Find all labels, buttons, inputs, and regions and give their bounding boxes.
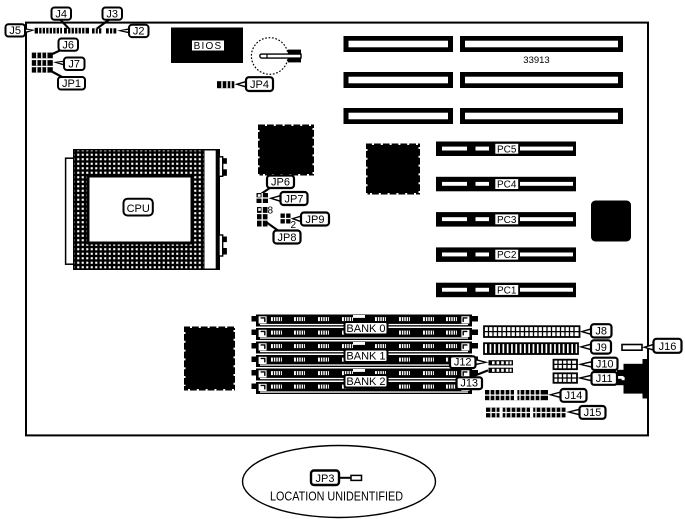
svg-text:PC2: PC2 <box>497 250 517 261</box>
svg-text:J5: J5 <box>9 25 21 37</box>
svg-text:PC1: PC1 <box>497 286 517 297</box>
svg-text:PC4: PC4 <box>497 180 517 191</box>
svg-text:2: 2 <box>291 220 297 231</box>
svg-text:8: 8 <box>268 206 274 217</box>
svg-text:33913: 33913 <box>523 55 549 66</box>
svg-text:J8: J8 <box>595 326 607 338</box>
svg-text:BIOS: BIOS <box>194 41 223 52</box>
svg-text:JP8: JP8 <box>278 232 297 244</box>
svg-text:BANK 1: BANK 1 <box>346 351 385 363</box>
svg-text:LOCATION UNIDENTIFIED: LOCATION UNIDENTIFIED <box>270 490 403 504</box>
svg-text:J3: J3 <box>106 8 118 20</box>
svg-text:J13: J13 <box>460 378 478 390</box>
svg-text:CPU: CPU <box>127 203 150 215</box>
svg-text:J6: J6 <box>62 39 74 51</box>
svg-text:J11: J11 <box>596 373 613 385</box>
svg-text:BANK 0: BANK 0 <box>346 323 385 335</box>
svg-text:J4: J4 <box>55 8 67 20</box>
svg-text:JP4: JP4 <box>250 79 269 91</box>
svg-text:JP9: JP9 <box>306 214 325 226</box>
svg-text:J15: J15 <box>584 407 602 419</box>
svg-text:J14: J14 <box>565 390 583 402</box>
svg-text:JP1: JP1 <box>62 78 81 90</box>
svg-text:PC3: PC3 <box>497 215 517 226</box>
svg-text:J7: J7 <box>68 59 80 71</box>
svg-text:JP3: JP3 <box>316 473 335 485</box>
svg-text:BANK 2: BANK 2 <box>346 376 385 388</box>
svg-text:J10: J10 <box>596 358 614 370</box>
svg-text:J12: J12 <box>454 357 472 369</box>
svg-text:J9: J9 <box>595 342 607 354</box>
svg-text:PC5: PC5 <box>497 144 517 155</box>
svg-text:J2: J2 <box>133 26 145 38</box>
svg-text:J16: J16 <box>659 341 677 353</box>
svg-text:JP6: JP6 <box>271 176 290 188</box>
svg-text:JP7: JP7 <box>285 193 304 205</box>
